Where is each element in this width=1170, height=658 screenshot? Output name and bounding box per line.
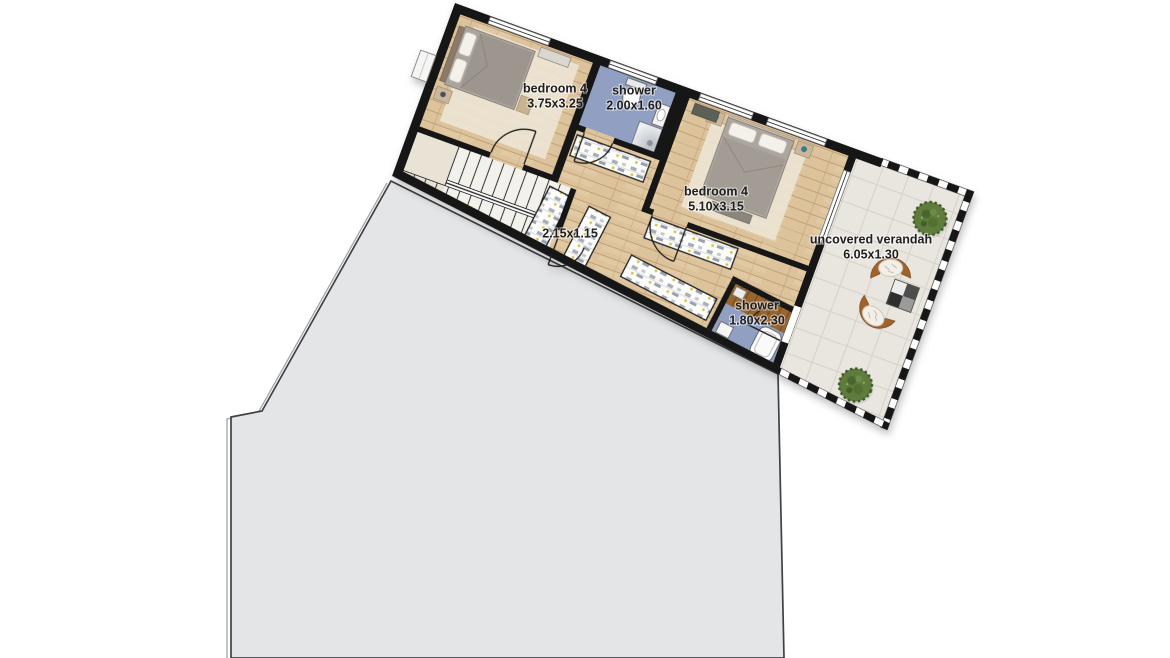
- floor-plan-canvas: bedroom 4 3.75x3.25 shower 2.00x1.60 bed…: [0, 0, 1170, 658]
- room-label-bedroom4-middle: bedroom 4: [684, 184, 748, 198]
- room-dims-shower-bottom: 1.80x2.30: [729, 313, 785, 327]
- room-dims-hallway: 2.15x1.15: [542, 226, 598, 240]
- room-label-shower-bottom: shower: [735, 298, 779, 312]
- room-label-shower-top: shower: [612, 83, 656, 97]
- room-label-bedroom4-left: bedroom 4: [523, 81, 587, 95]
- room-label-verandah: uncovered verandah: [810, 232, 932, 246]
- room-dims-bedroom4-middle: 5.10x3.15: [688, 199, 744, 213]
- room-dims-verandah: 6.05x1.30: [843, 247, 899, 261]
- room-dims-shower-top: 2.00x1.60: [606, 98, 662, 112]
- room-dims-bedroom4-left: 3.75x3.25: [527, 96, 583, 110]
